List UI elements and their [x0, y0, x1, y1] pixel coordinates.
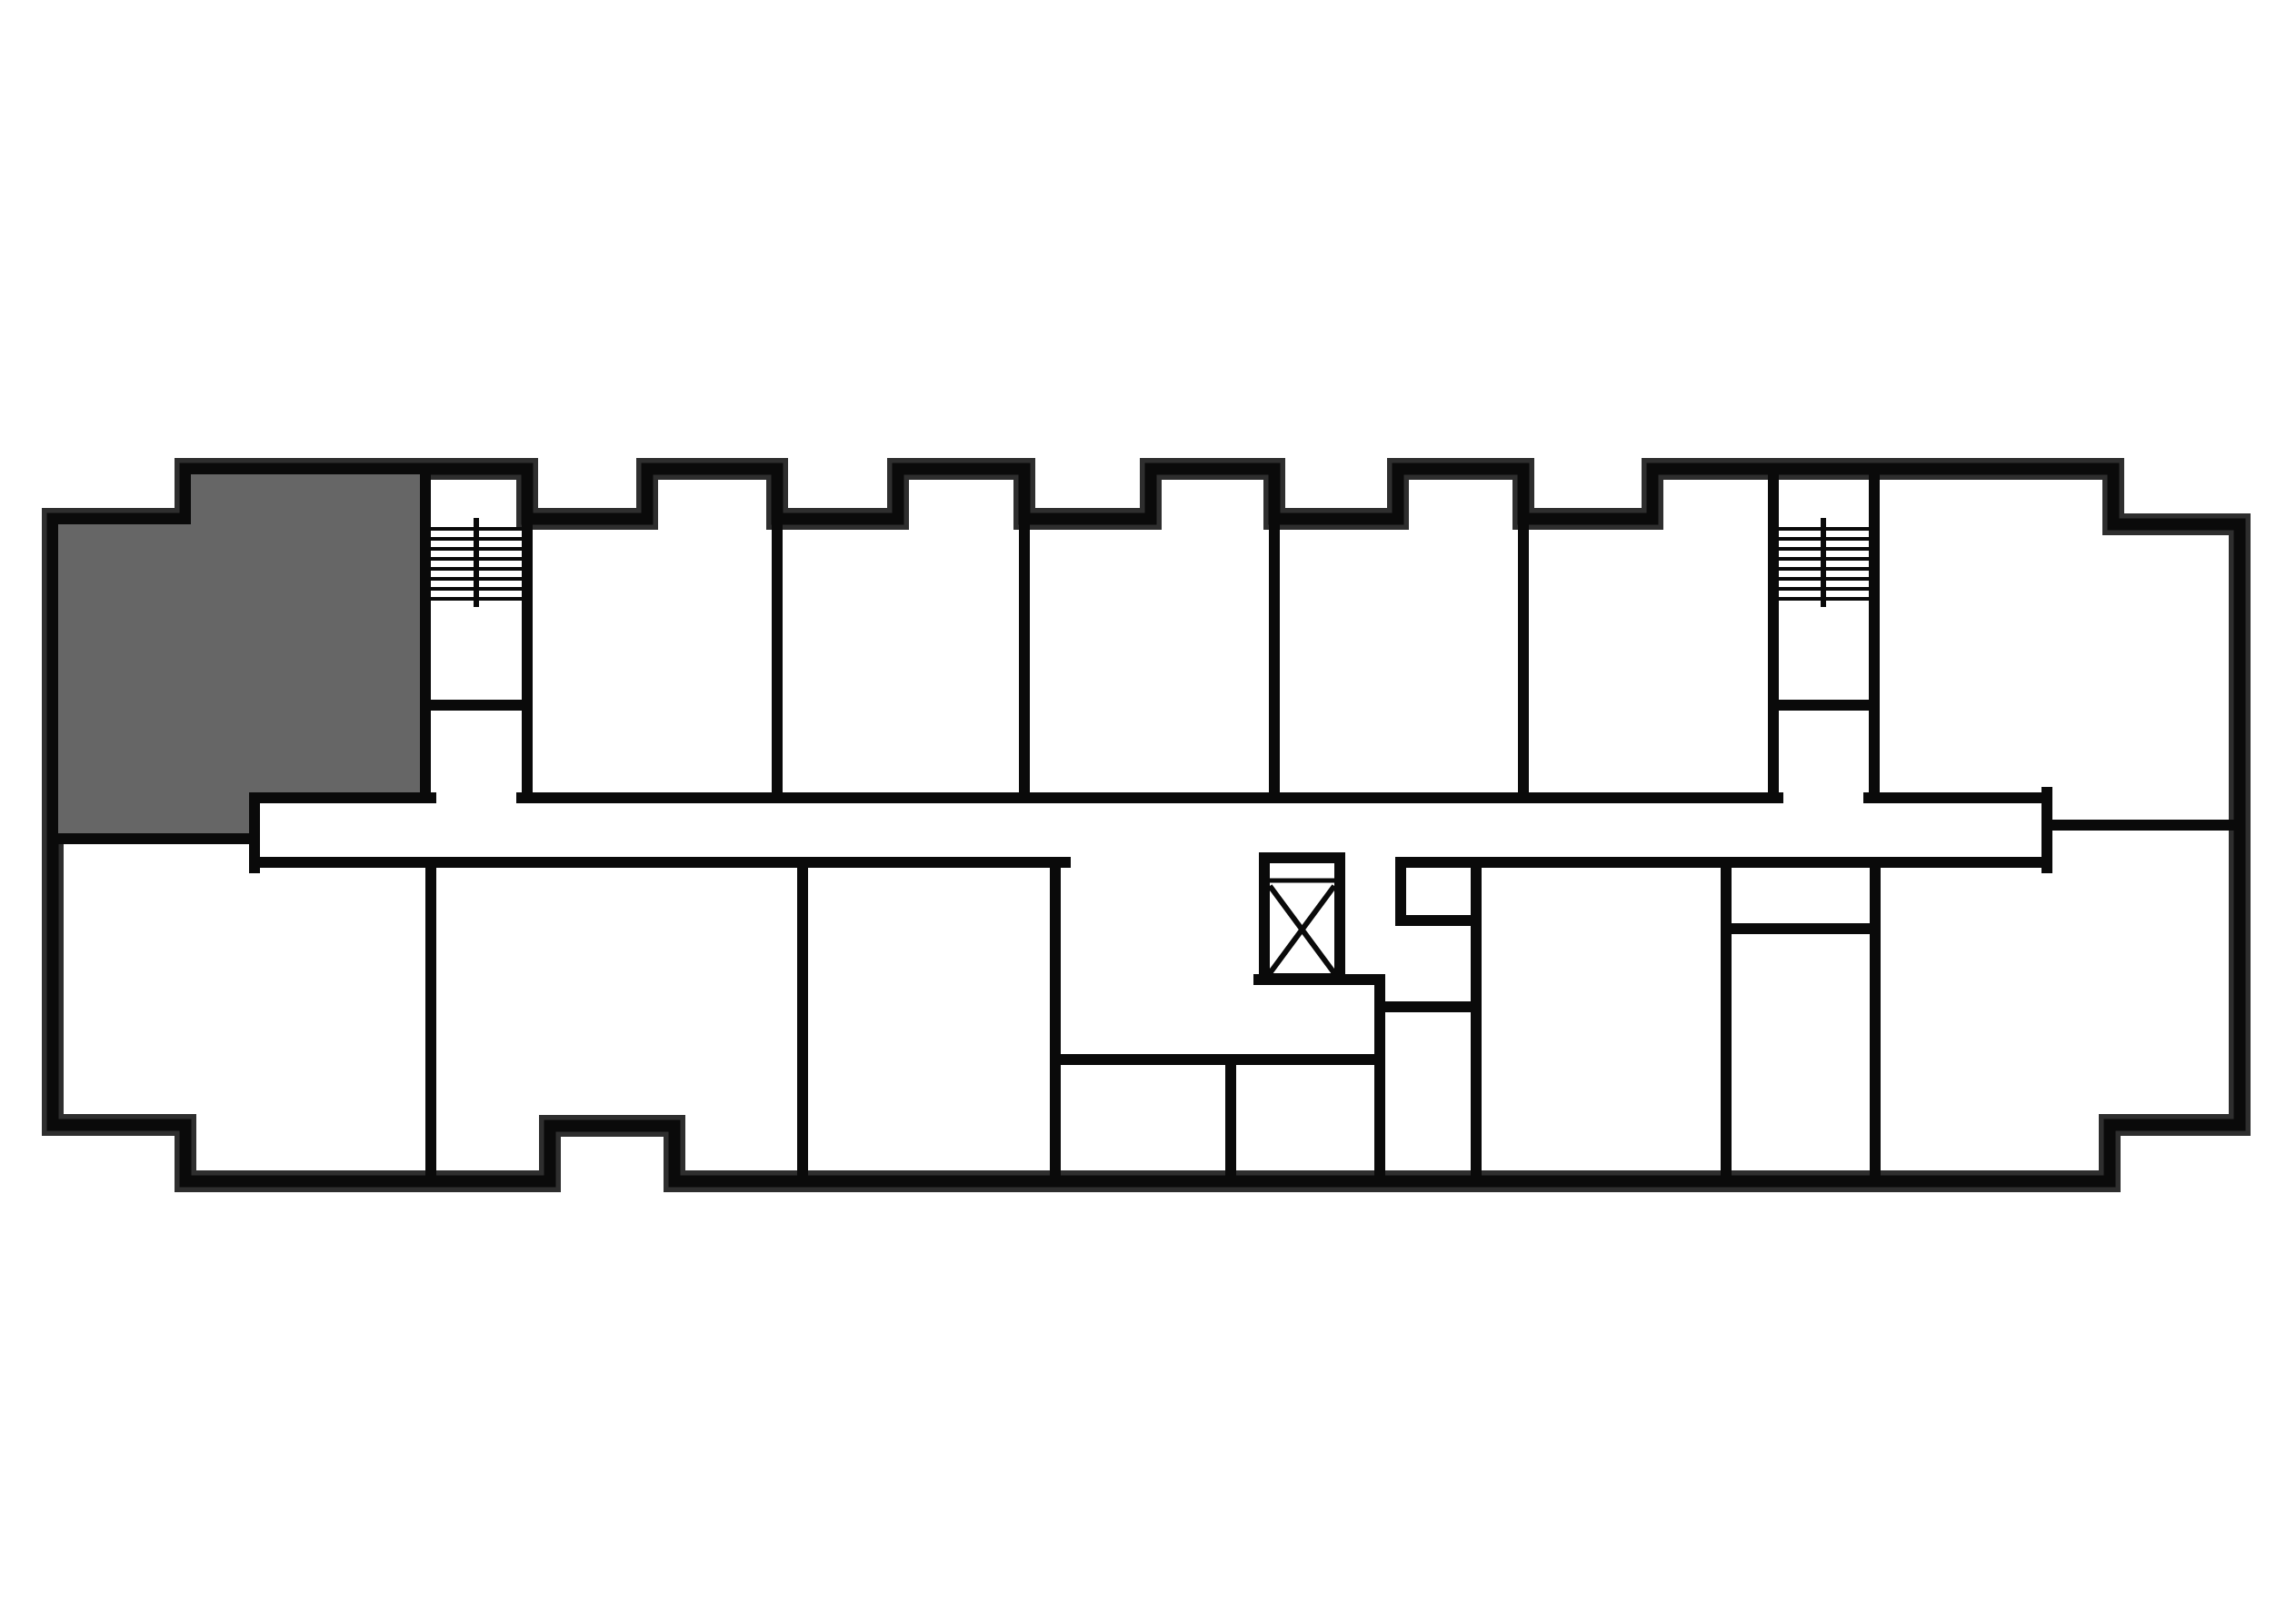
floor-plan-svg — [0, 0, 2296, 1622]
floor-plan-canvas — [0, 0, 2296, 1622]
elevator-icon — [1259, 858, 1345, 979]
floor-plan — [0, 0, 2296, 1622]
highlighted-unit[interactable] — [53, 469, 425, 839]
